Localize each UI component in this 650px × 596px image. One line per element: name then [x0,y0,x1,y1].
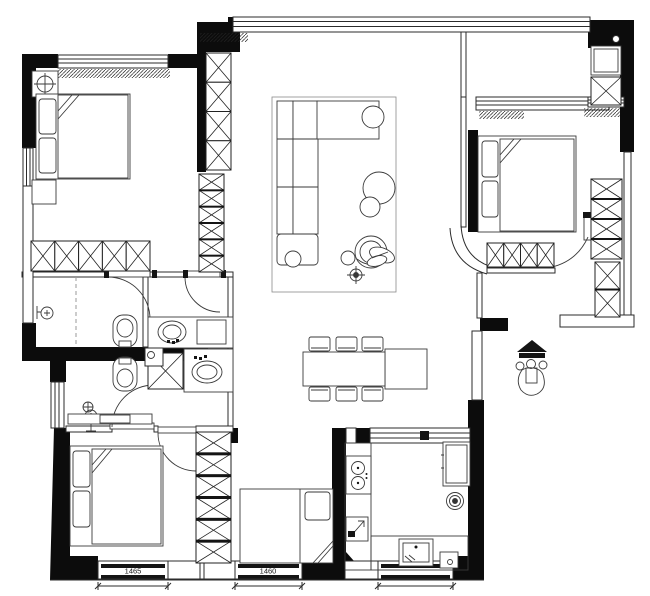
water-heater-icon [346,517,368,541]
cabinet-entry-shoe [595,262,620,317]
cabinet-column-upper [206,53,231,170]
person-entry-marker-icon [516,340,547,395]
wall-niche [145,348,163,366]
toilet-icon [113,357,137,391]
side-table [341,251,355,265]
dining-table [303,352,385,386]
stool [285,251,301,267]
floor-plan-canvas: 1465 1460 [0,0,650,596]
bed-single [240,489,333,563]
curtain-hatch [479,111,524,119]
cabinet-balcony [591,77,621,105]
living-room [272,97,397,292]
curtain-hatch [58,69,170,78]
curtain-hatch [584,108,620,117]
bed-double [36,94,130,179]
wall-seg-bottom [168,561,235,579]
cabinet-column-lower [199,174,224,272]
kitchen-sliding-door [370,428,470,443]
bed-double [478,136,576,232]
bedroom-1 [32,71,130,204]
coffee-table [360,172,395,217]
headboard-accent-wall [468,130,478,232]
kitchen [345,442,470,570]
dining-sideboard [385,349,427,389]
floor-drain-icon [447,493,464,510]
vanity-sink [148,317,233,348]
window-top-band [233,17,590,32]
window-dimension-label: 1465 [125,567,142,576]
wardrobe-bedroom-2 [487,243,554,267]
wardrobe-bedroom-1 [31,241,150,271]
vanity-counter [68,402,152,424]
shower-head-icon [37,306,53,319]
curtain-hatch [200,33,248,42]
door-bedroom-3 [158,427,196,471]
cabinet-entry-tall [591,179,622,259]
wardrobe-bedroom-3-column [196,432,231,563]
door-wc-sink [185,271,220,312]
window-bottom-1: 1465 [98,561,168,579]
bed-double [70,446,163,546]
ceiling-fixture-icon [347,266,365,284]
window-left-upper [23,148,33,186]
window-bedroom-1-top [58,55,168,68]
apartment-floor-plan: 1465 1460 [0,0,650,596]
dimension-lines [95,582,456,590]
nightstand [32,180,56,204]
two-burner-stove-icon [346,456,371,494]
nightstand-with-lamp [32,71,58,97]
window-dimension-label: 1460 [260,567,277,576]
dining-area [303,337,427,401]
bathroom-1 [37,277,233,348]
round-cushion [362,106,384,128]
kitchen-sink-icon [399,539,433,566]
entry [516,340,547,395]
bedroom-3 [70,446,163,546]
window-bottom-2: 1460 [235,561,302,579]
window-left-lower [51,382,64,428]
refrigerator-icon [441,442,470,486]
vanity-sink [184,349,233,392]
toilet-icon [113,315,137,347]
corner-fixture [440,552,458,568]
bedroom-4 [240,489,333,563]
